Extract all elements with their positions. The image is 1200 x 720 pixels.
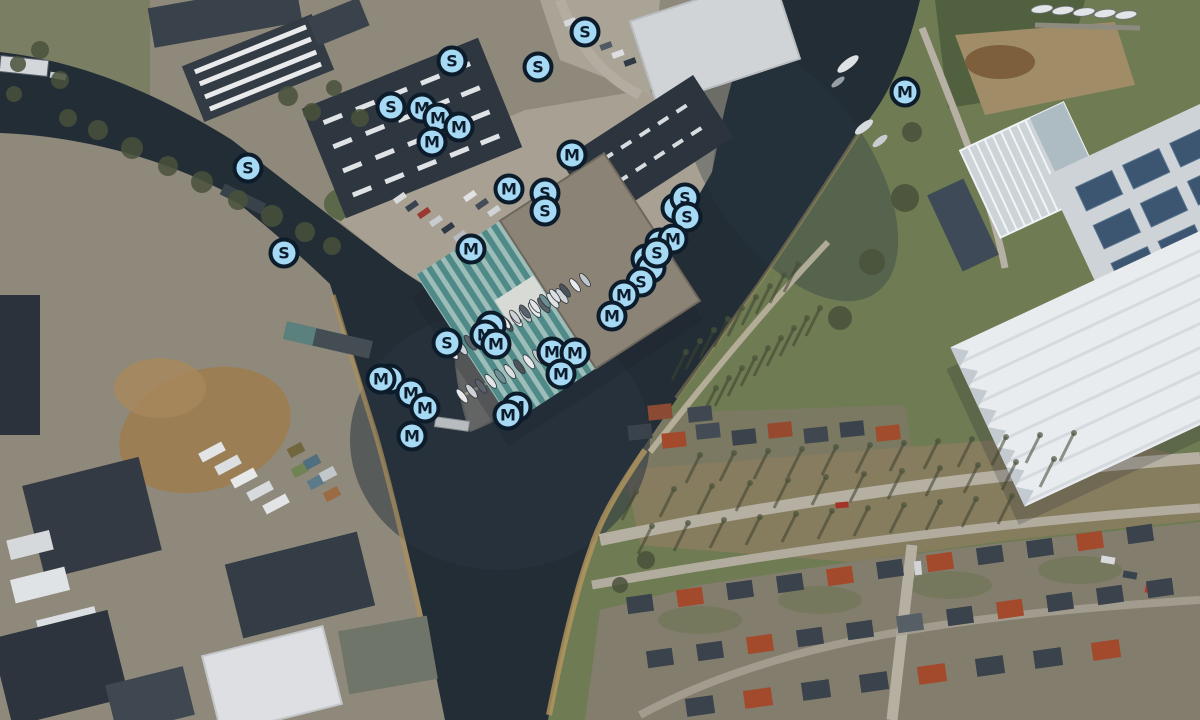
- map-marker-m[interactable]: M: [417, 127, 448, 158]
- map-marker-s[interactable]: S: [269, 238, 300, 269]
- marker-letter: M: [544, 344, 560, 360]
- marker-letter: M: [500, 407, 516, 423]
- aerial-map[interactable]: SSSMSMMMMMSMSSSSMMSSSMMMSMMMMMMMMMM: [0, 0, 1200, 720]
- map-marker-s[interactable]: S: [530, 196, 561, 227]
- marker-letter: S: [446, 53, 458, 69]
- marker-letter: S: [651, 245, 663, 261]
- map-marker-m[interactable]: M: [444, 112, 475, 143]
- map-marker-m[interactable]: M: [493, 400, 524, 431]
- marker-letter: S: [539, 203, 551, 219]
- marker-letter: M: [553, 366, 569, 382]
- map-marker-s[interactable]: S: [523, 52, 554, 83]
- marker-letter: M: [488, 336, 504, 352]
- marker-letter: S: [385, 99, 397, 115]
- marker-letter: S: [532, 59, 544, 75]
- marker-letter: S: [441, 335, 453, 351]
- marker-letter: M: [404, 428, 420, 444]
- marker-letter: M: [604, 308, 620, 324]
- marker-letter: M: [501, 181, 517, 197]
- marker-letter: M: [897, 84, 913, 100]
- map-marker-m[interactable]: M: [410, 393, 441, 424]
- map-marker-m[interactable]: M: [597, 301, 628, 332]
- marker-letter: S: [681, 209, 693, 225]
- map-marker-s[interactable]: S: [432, 328, 463, 359]
- marker-letter: S: [242, 160, 254, 176]
- marker-letter: M: [424, 134, 440, 150]
- map-marker-s[interactable]: S: [233, 153, 264, 184]
- marker-letter: M: [616, 287, 632, 303]
- map-marker-m[interactable]: M: [397, 421, 428, 452]
- marker-layer: SSSMSMMMMMSMSSSSMMSSSMMMSMMMMMMMMMM: [0, 0, 1200, 720]
- marker-letter: S: [579, 24, 591, 40]
- marker-letter: M: [417, 400, 433, 416]
- marker-letter: M: [451, 119, 467, 135]
- map-marker-s[interactable]: S: [437, 46, 468, 77]
- map-marker-m[interactable]: M: [546, 359, 577, 390]
- map-marker-s[interactable]: S: [642, 238, 673, 269]
- marker-letter: M: [564, 147, 580, 163]
- marker-letter: M: [567, 345, 583, 361]
- map-marker-m[interactable]: M: [366, 364, 397, 395]
- map-marker-m[interactable]: M: [456, 234, 487, 265]
- map-marker-m[interactable]: M: [494, 174, 525, 205]
- marker-letter: S: [278, 245, 290, 261]
- map-marker-m[interactable]: M: [557, 140, 588, 171]
- map-marker-s[interactable]: S: [376, 92, 407, 123]
- map-marker-s[interactable]: S: [570, 17, 601, 48]
- marker-letter: M: [463, 241, 479, 257]
- map-marker-m[interactable]: M: [890, 77, 921, 108]
- marker-letter: M: [373, 371, 389, 387]
- map-marker-m[interactable]: M: [481, 329, 512, 360]
